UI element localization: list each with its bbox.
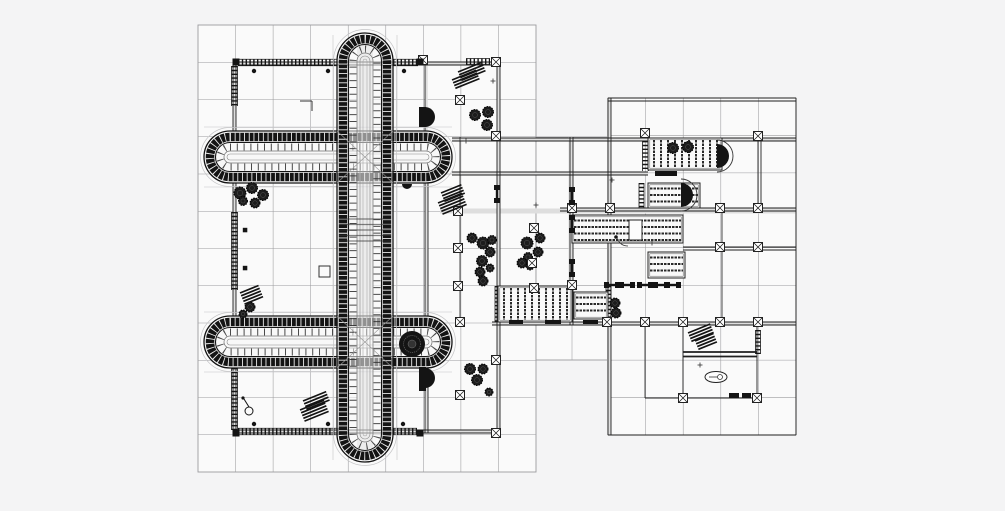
dash-block bbox=[742, 393, 751, 398]
tree-symbol bbox=[533, 247, 543, 257]
tree-symbol bbox=[470, 110, 481, 121]
tree-symbol bbox=[478, 276, 488, 286]
pier-column-web bbox=[623, 284, 631, 286]
rosette-core bbox=[408, 340, 416, 348]
tree-symbol bbox=[485, 388, 493, 396]
column-dot bbox=[402, 69, 406, 73]
column-dot bbox=[326, 69, 330, 73]
dash-block bbox=[583, 320, 598, 324]
tree-symbol bbox=[517, 258, 527, 268]
column-dot bbox=[252, 422, 256, 426]
dash-block bbox=[655, 171, 677, 176]
dash-block bbox=[509, 320, 523, 324]
tree-symbol bbox=[478, 364, 488, 374]
tree-symbol bbox=[239, 310, 247, 318]
tree-symbol bbox=[610, 298, 620, 308]
floorplan-drawing bbox=[0, 0, 1005, 511]
pier-column-web bbox=[669, 284, 677, 286]
tree-symbol bbox=[477, 256, 488, 267]
small-footing bbox=[243, 266, 248, 271]
tree-symbol bbox=[467, 233, 477, 243]
tree-symbol bbox=[472, 375, 483, 386]
dash-block bbox=[545, 320, 561, 324]
tree-symbol bbox=[247, 183, 258, 194]
column-dot bbox=[252, 69, 256, 73]
tree-symbol bbox=[521, 237, 533, 249]
wall-chunk bbox=[419, 107, 426, 127]
wall-chunk bbox=[419, 367, 426, 391]
tree-symbol bbox=[465, 364, 476, 375]
pier-column-web bbox=[641, 284, 649, 286]
pier-column-web bbox=[571, 219, 573, 229]
floorplan-svg bbox=[0, 0, 1005, 511]
dash-block bbox=[729, 393, 739, 398]
small-footing bbox=[243, 228, 248, 233]
tree-symbol bbox=[683, 142, 694, 153]
column-dot bbox=[326, 422, 330, 426]
lamp-head bbox=[241, 396, 244, 399]
pergola bbox=[572, 215, 683, 243]
tree-symbol bbox=[482, 120, 493, 131]
tree-symbol bbox=[485, 247, 495, 257]
column-footing bbox=[417, 430, 424, 437]
column-footing bbox=[417, 59, 424, 66]
pier-column-web bbox=[496, 189, 498, 199]
tree-symbol bbox=[668, 143, 679, 154]
pier-column-web bbox=[571, 263, 573, 273]
pier-column-web bbox=[608, 284, 616, 286]
tree-symbol bbox=[486, 264, 494, 272]
column-footing bbox=[233, 430, 240, 437]
tree-symbol bbox=[475, 267, 485, 277]
tree-symbol bbox=[611, 308, 621, 318]
column-dot bbox=[401, 422, 405, 426]
column-footing bbox=[233, 59, 240, 66]
tree-symbol bbox=[535, 233, 545, 243]
tree-symbol bbox=[239, 197, 248, 206]
pergola bbox=[574, 292, 608, 319]
tree-symbol bbox=[483, 107, 494, 118]
pier-column-web bbox=[657, 284, 665, 286]
pier-column-web bbox=[571, 191, 573, 201]
tree-symbol bbox=[258, 190, 269, 201]
table-rect bbox=[629, 220, 642, 240]
tree-symbol bbox=[488, 236, 497, 245]
tree-symbol bbox=[250, 198, 260, 208]
